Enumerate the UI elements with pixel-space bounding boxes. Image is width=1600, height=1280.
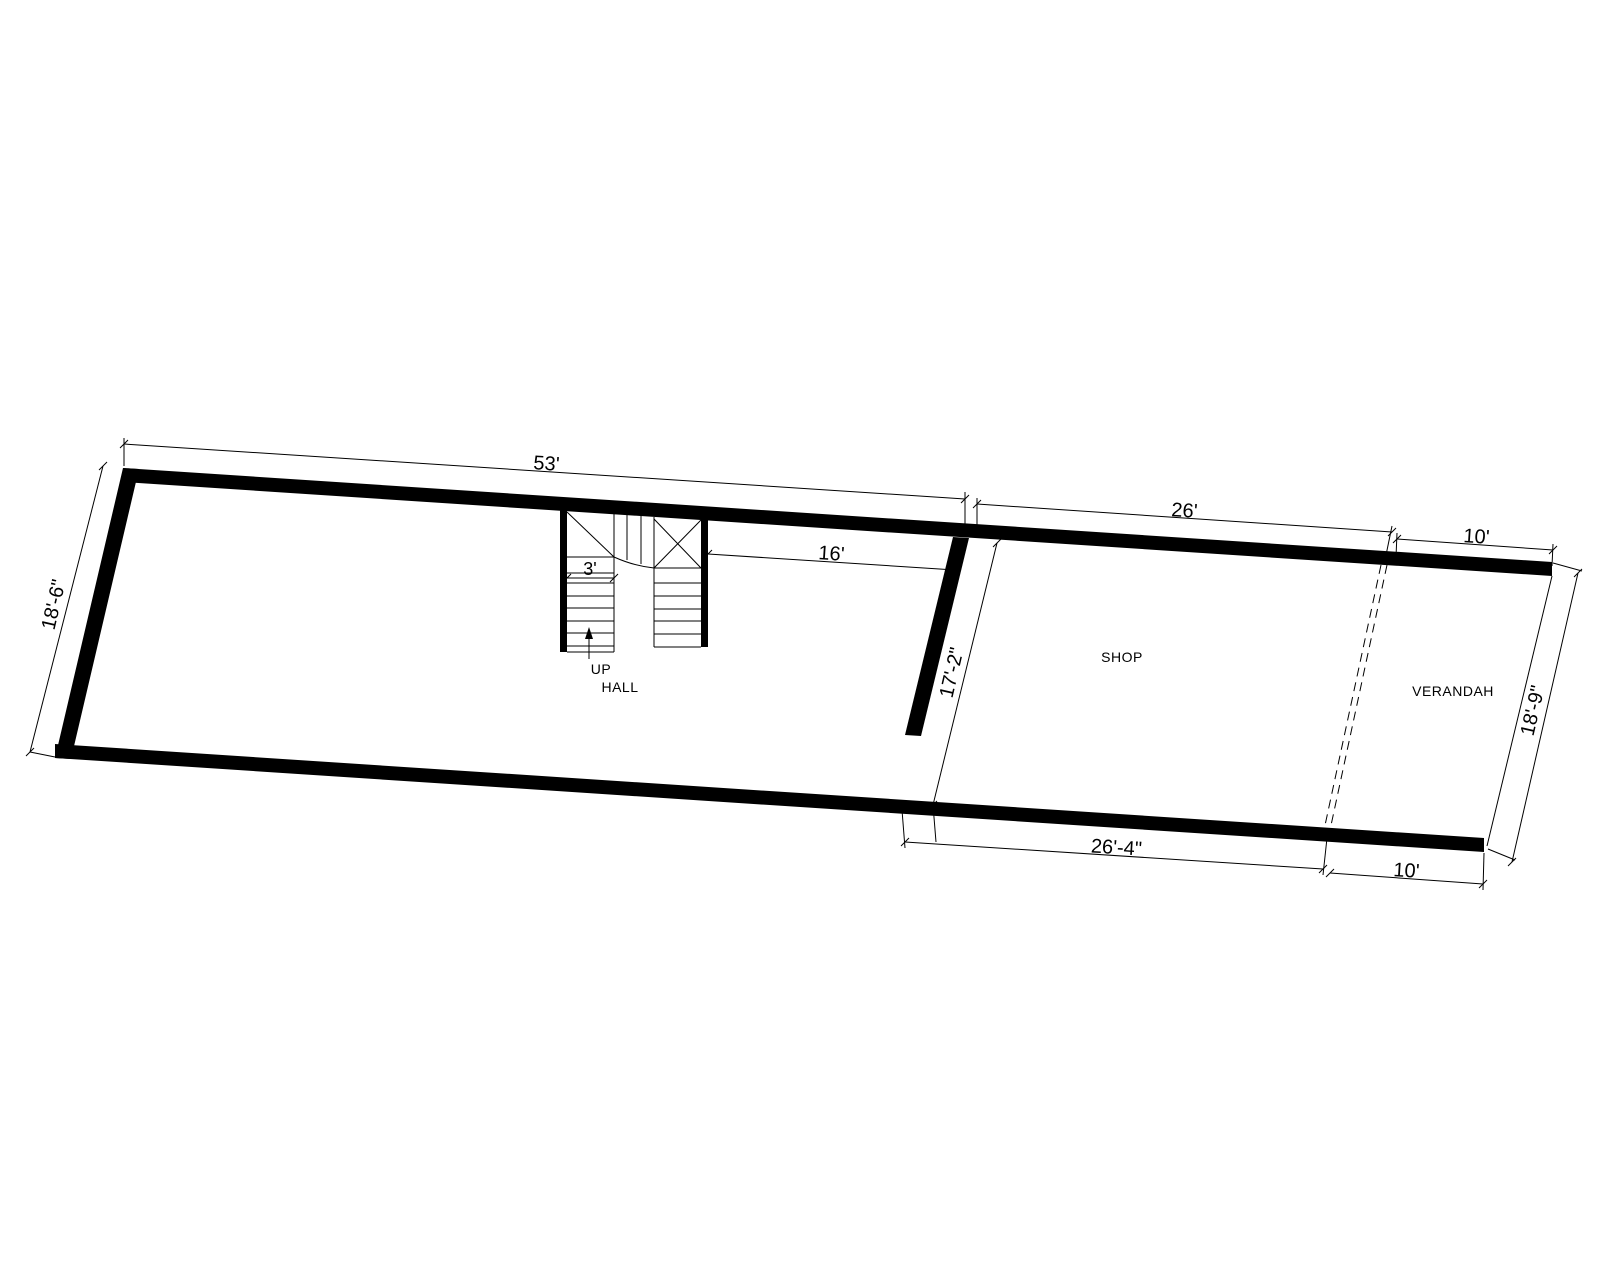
room-label-shop: SHOP: [1101, 649, 1143, 665]
shop-verandah-shutter-dashed: [1324, 565, 1387, 830]
stair-right-wall: [701, 519, 708, 647]
floor-plan-drawing: 53' 18'-6" 26' 10' 16' 3' 17'-2" 26'-4" …: [0, 0, 1600, 1280]
staircase: [567, 512, 701, 659]
stair-cross-lines: [654, 519, 701, 568]
stair-treads-right-flight: [654, 568, 701, 647]
dim-label-18ft9in: 18'-9": [1517, 683, 1550, 738]
left-wall: [55, 468, 139, 759]
dim-label-10ft-bottom: 10': [1393, 859, 1420, 883]
dim-label-16ft: 16': [818, 542, 845, 566]
stair-up-arrow: [585, 627, 593, 659]
stair-up-label: UP: [591, 661, 611, 677]
dim-label-18ft6in: 18'-6": [38, 577, 71, 632]
dim-label-26ft4in: 26'-4": [1090, 835, 1142, 860]
dim-label-3ft: 3': [583, 559, 596, 579]
dim-label-10ft-top: 10': [1463, 525, 1490, 549]
walls: [55, 468, 1552, 852]
dim-label-53ft: 53': [533, 452, 560, 476]
dimension-lines: [26, 438, 1582, 890]
floor-plan-canvas: 53' 18'-6" 26' 10' 16' 3' 17'-2" 26'-4" …: [0, 0, 1600, 1280]
dim-label-26ft: 26': [1171, 499, 1198, 523]
room-label-hall: HALL: [601, 679, 638, 695]
hall-shop-partition-wall: [905, 537, 969, 736]
room-label-verandah: VERANDAH: [1412, 683, 1494, 699]
bottom-wall: [55, 744, 1484, 852]
